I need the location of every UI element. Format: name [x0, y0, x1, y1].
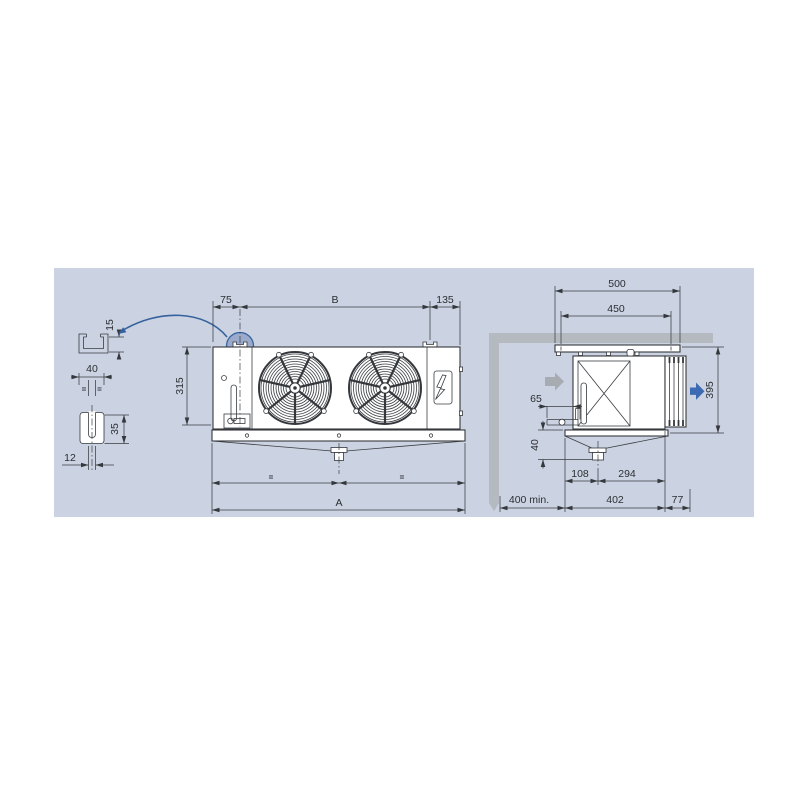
- heater-pocket-side: [581, 383, 587, 424]
- dim-label-B: B: [331, 294, 338, 306]
- technical-drawing-page: 15 40 = = 35 12: [0, 0, 800, 800]
- ceiling-band: [489, 333, 713, 343]
- pipe-stub-top: [627, 350, 634, 357]
- fan-shroud-side: [665, 356, 686, 427]
- wall-band: [489, 333, 499, 503]
- drip-tray-front: [212, 430, 465, 441]
- equal-mark-right: =: [97, 385, 102, 394]
- unit-cooler-dimensional-drawing: 15 40 = = 35 12: [0, 0, 800, 800]
- drain-flange-side: [589, 448, 606, 453]
- dim-label-77: 77: [672, 494, 684, 506]
- dim-label-315: 315: [174, 377, 186, 395]
- drip-tray-side: [565, 430, 668, 436]
- dim-label-108: 108: [571, 468, 589, 480]
- dim-label-402: 402: [606, 494, 624, 506]
- dim-label-15: 15: [104, 319, 116, 331]
- dim-label-75: 75: [220, 294, 232, 306]
- dim-label-135: 135: [436, 294, 454, 306]
- equal-mark-left: =: [269, 473, 274, 482]
- dim-label-400min: 400 min.: [509, 494, 549, 506]
- mounting-plate: [555, 345, 680, 352]
- dim-label-500: 500: [608, 278, 626, 290]
- dim-label-35: 35: [109, 423, 121, 435]
- dim-label-40: 40: [86, 363, 98, 375]
- equal-mark-left: =: [82, 385, 87, 394]
- equal-mark-right: =: [400, 473, 405, 482]
- dim-label-450: 450: [607, 303, 625, 315]
- dim-label-294: 294: [618, 468, 636, 480]
- dim-label-65: 65: [530, 393, 542, 405]
- dim-label-A: A: [335, 497, 342, 509]
- dim-label-395: 395: [704, 381, 716, 399]
- dim-label-40-side: 40: [529, 439, 541, 451]
- dim-label-12: 12: [64, 452, 76, 464]
